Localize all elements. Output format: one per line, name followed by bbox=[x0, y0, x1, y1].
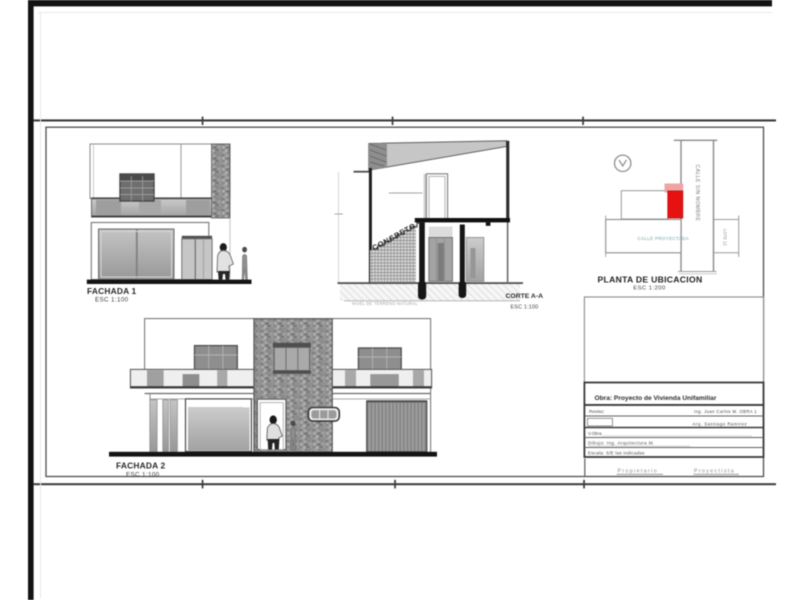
svg-text:CORTE A-A: CORTE A-A bbox=[506, 293, 544, 300]
svg-text:Propietario: Propietario bbox=[618, 469, 659, 475]
svg-text:CALLE SIN NOMBRE: CALLE SIN NOMBRE bbox=[694, 165, 700, 222]
svg-text:NIVEL DE TERRENO NATURAL: NIVEL DE TERRENO NATURAL bbox=[352, 301, 418, 306]
svg-text:LOTE 12: LOTE 12 bbox=[723, 229, 728, 246]
svg-text:Dibujo: Ing. Arquitectura M.: Dibujo: Ing. Arquitectura M. bbox=[588, 441, 655, 446]
svg-text:V.Obra: V.Obra bbox=[588, 431, 602, 436]
svg-text:ESC 1:200: ESC 1:200 bbox=[633, 285, 666, 291]
svg-text:Proyectista: Proyectista bbox=[694, 469, 735, 475]
svg-text:ESC 1:100: ESC 1:100 bbox=[126, 471, 160, 478]
svg-text:FACHADA 2: FACHADA 2 bbox=[116, 461, 166, 471]
svg-text:FACHADA 1: FACHADA 1 bbox=[87, 286, 137, 296]
svg-text:ESC 1:100: ESC 1:100 bbox=[95, 297, 129, 304]
svg-text:ESC 1:100: ESC 1:100 bbox=[511, 305, 539, 311]
svg-text:Ing. Juan Carlos M. OBRA 1: Ing. Juan Carlos M. OBRA 1 bbox=[694, 409, 757, 414]
svg-text:Obra: Proyecto de Vivienda Uni: Obra: Proyecto de Vivienda Unifamiliar bbox=[595, 395, 717, 402]
svg-text:Reviso:: Reviso: bbox=[589, 409, 604, 414]
svg-text:PLANTA DE UBICACION: PLANTA DE UBICACION bbox=[597, 275, 702, 285]
svg-text:CALLE PROYECTADA: CALLE PROYECTADA bbox=[638, 236, 689, 241]
svg-text:Arq. Santiago Ramirez: Arq. Santiago Ramirez bbox=[693, 421, 748, 426]
svg-text:Escala: S/E las indicadas: Escala: S/E las indicadas bbox=[588, 450, 645, 455]
